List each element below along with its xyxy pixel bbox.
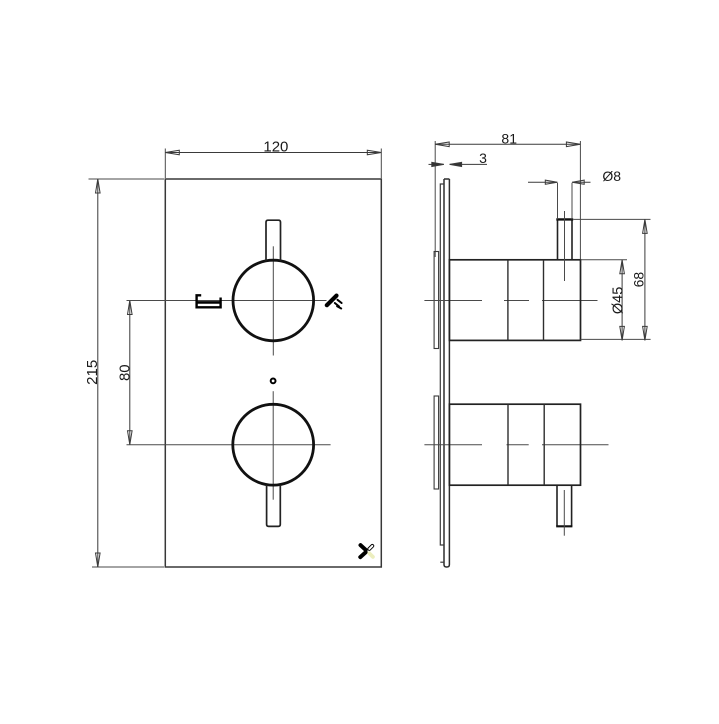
svg-text:Ø45: Ø45 bbox=[611, 287, 627, 314]
svg-text:120: 120 bbox=[263, 138, 288, 155]
svg-text:81: 81 bbox=[501, 130, 517, 146]
svg-text:68: 68 bbox=[631, 272, 647, 288]
svg-text:80: 80 bbox=[116, 364, 133, 381]
svg-text:Ø8: Ø8 bbox=[602, 168, 621, 184]
svg-text:215: 215 bbox=[84, 360, 101, 385]
svg-text:3: 3 bbox=[479, 150, 487, 166]
